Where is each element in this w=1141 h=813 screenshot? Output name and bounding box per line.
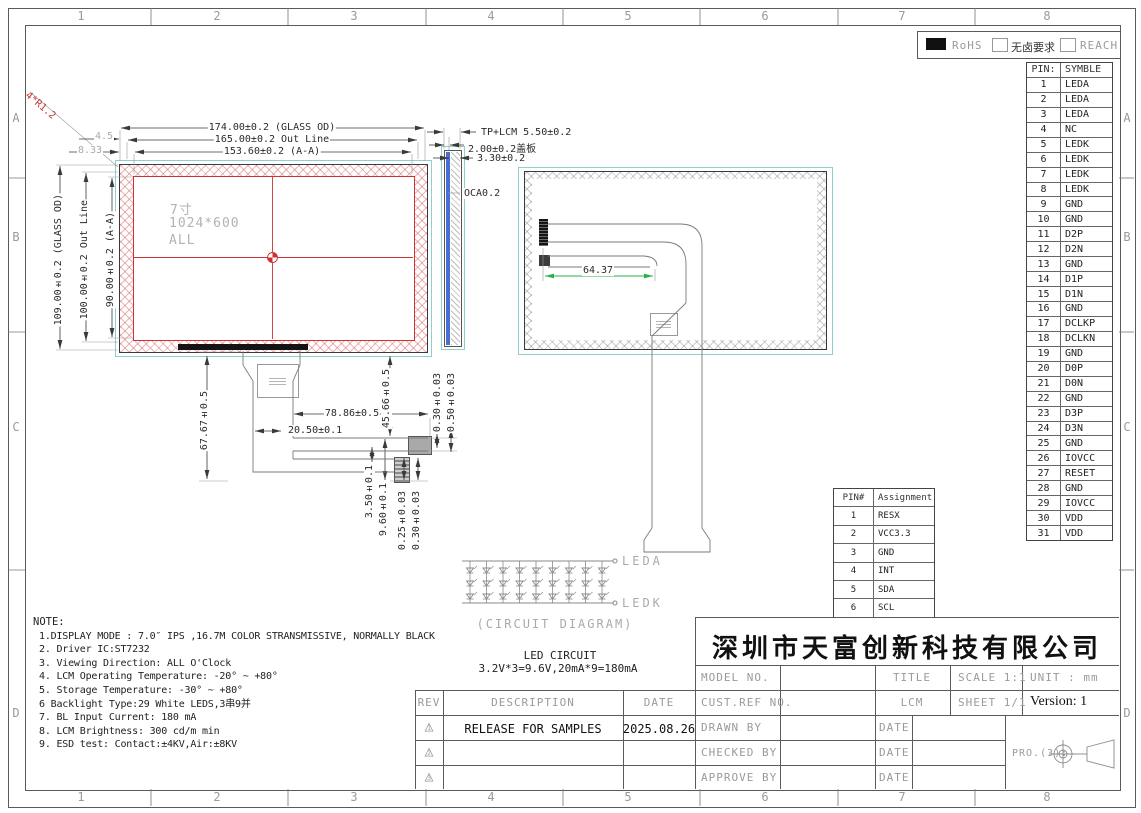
projection-label: PRO.(3): [1012, 748, 1068, 759]
pin-table-cell-val: GND [1061, 481, 1112, 495]
pin-table-cell-val: D3N [1061, 422, 1112, 436]
pin-table-cell-pin: 8 [1027, 183, 1061, 197]
frame-col-label: 1 [77, 9, 84, 23]
pin-table-row: 22GND [1027, 392, 1112, 407]
frame-row-label: C [1123, 420, 1130, 434]
tp-pin-table-cell-val: Assignment [874, 489, 934, 506]
pin-table-cell-pin: 24 [1027, 422, 1061, 436]
frame-col-label: 3 [350, 9, 357, 23]
halogen-free-checkbox [992, 38, 1008, 52]
tp-pin-table-cell-pin: 2 [834, 526, 874, 543]
frame-col-label: 5 [624, 790, 631, 804]
notes-block: NOTE:1.DISPLAY MODE : 7.0″ IPS ,16.7M CO… [33, 616, 433, 752]
revision-number: 1 [427, 725, 431, 732]
tp-pin-table-row: 4INT [834, 563, 934, 581]
tp-pin-table-cell-val: RESX [874, 507, 934, 524]
dim-fpc-branch-drop: 45.66±0.5 [381, 368, 392, 429]
pin-table-cell-pin: 10 [1027, 212, 1061, 226]
pin-table-cell-val: GND [1061, 257, 1112, 271]
pin-table-cell-pin: 15 [1027, 287, 1061, 301]
revision-number: 3 [427, 775, 431, 782]
pin-table-cell-val: D1P [1061, 272, 1112, 286]
dim-width-glass: 174.00±0.2 (GLASS OD) [208, 122, 336, 133]
frame-row-label: C [12, 420, 19, 434]
dim-fpc-thk-top-2: 0.50±0.03 [446, 372, 457, 433]
pin-table-row: 21D0N [1027, 377, 1112, 392]
note-line: 6 Backlight Type:29 White LEDS,3串9并 [33, 698, 433, 712]
dim-side-lcm: 3.30±0.2 [476, 153, 526, 164]
pin-table-cell-pin: 30 [1027, 511, 1061, 525]
tp-pin-table-cell-pin: PIN# [834, 489, 874, 506]
pin-table-row: 5LEDK [1027, 138, 1112, 153]
pin-table-cell-pin: 20 [1027, 362, 1061, 376]
reach-checkbox [1060, 38, 1076, 52]
pin-table-cell-pin: 16 [1027, 302, 1061, 316]
note-line: 4. LCM Operating Temperature: -20° ~ +80… [33, 670, 433, 684]
frame-col-label: 5 [624, 9, 631, 23]
dim-height-outline: 100.00±0.2 Out Line [79, 199, 90, 320]
circuit-diagram-caption: (CIRCUIT DIAGRAM) [477, 617, 634, 631]
checked-by-label: CHECKED BY [701, 746, 777, 759]
pin-table-cell-pin: 13 [1027, 257, 1061, 271]
tp-pin-table-cell-pin: 5 [834, 581, 874, 598]
fpc-connector-2 [394, 457, 410, 483]
unit-label: UNIT : mm [1030, 671, 1099, 684]
tp-pin-table-row: PIN#Assignment [834, 489, 934, 507]
revision-description: RELEASE FOR SAMPLES [464, 722, 601, 736]
tp-pin-table-row: 5SDA [834, 581, 934, 599]
pin-table-cell-val: LEDA [1061, 78, 1112, 92]
dim-fpc-thk-bot-1: 0.25±0.03 [397, 490, 408, 551]
rev-col-header: REV [418, 696, 441, 709]
pin-table-row: 7LEDK [1027, 168, 1112, 183]
tp-pin-table-cell-pin: 1 [834, 507, 874, 524]
fpc-connector-1 [408, 436, 432, 455]
tp-pin-table-row: 6SCL [834, 599, 934, 616]
note-line: 7. BL Input Current: 180 mA [33, 711, 433, 725]
screen-resolution-label: 1024*600 [169, 216, 240, 231]
frame-row-label: A [1123, 111, 1130, 125]
pin-table-cell-pin: 4 [1027, 123, 1061, 137]
back-connector-2 [539, 255, 550, 266]
pin-table-cell-val: VDD [1061, 526, 1112, 540]
dim-fpc-branch-width: 78.86±0.5 [324, 408, 380, 419]
drawn-by-label: DRAWN BY [701, 721, 762, 734]
dim-fpc-neck-offset: 20.50±0.1 [287, 425, 343, 436]
back-stamp-box [650, 313, 678, 336]
pin-table-row: 2LEDA [1027, 93, 1112, 108]
pin-table-row: 1LEDA [1027, 78, 1112, 93]
led-circuit-title: LED CIRCUIT [524, 649, 597, 662]
pin-table-row: 12D2N [1027, 242, 1112, 257]
drawn-date-label: DATE [879, 721, 910, 734]
pin-table-cell-val: LEDK [1061, 183, 1112, 197]
tp-pin-table-cell-pin: 3 [834, 544, 874, 561]
tp-pin-table-cell-val: VCC3.3 [874, 526, 934, 543]
front-stamp-marks [269, 377, 286, 385]
tp-pin-table-row: 2VCC3.3 [834, 526, 934, 544]
pin-table-row: PIN:SYMBLE [1027, 63, 1112, 78]
pin-table-row: 26IOVCC [1027, 451, 1112, 466]
pin-table-cell-val: GND [1061, 212, 1112, 226]
pin-table-cell-val: SYMBLE [1061, 63, 1112, 77]
pin-table-cell-val: IOVCC [1061, 451, 1112, 465]
reach-label: REACH [1080, 39, 1118, 52]
interface-pin-table: PIN:SYMBLE1LEDA2LEDA3LEDA4NC5LEDK6LEDK7L… [1026, 62, 1113, 541]
dim-fpc-gap: 3.50±0.1 [364, 464, 375, 519]
pin-table-cell-val: RESET [1061, 466, 1112, 480]
pin-table-row: 4NC [1027, 123, 1112, 138]
pin-table-cell-pin: 29 [1027, 496, 1061, 510]
pin-table-cell-pin: 22 [1027, 392, 1061, 406]
pin-table-cell-pin: 9 [1027, 197, 1061, 211]
pin-table-cell-pin: 19 [1027, 347, 1061, 361]
note-line: 1.DISPLAY MODE : 7.0″ IPS ,16.7M COLOR S… [33, 630, 433, 644]
frame-col-label: 7 [898, 9, 905, 23]
back-connector-1 [539, 219, 548, 246]
pin-table-cell-pin: 23 [1027, 407, 1061, 421]
pin-table-cell-val: D2N [1061, 242, 1112, 256]
frame-col-label: 6 [761, 9, 768, 23]
frame-row-label: A [12, 111, 19, 125]
note-line: 8. LCM Brightness: 300 cd/m min [33, 725, 433, 739]
pin-table-row: 11D2P [1027, 227, 1112, 242]
pin-table-row: 31VDD [1027, 526, 1112, 540]
pin-table-cell-val: GND [1061, 347, 1112, 361]
pin-table-row: 18DCLKN [1027, 332, 1112, 347]
fpc-bonding-bar [178, 344, 308, 350]
note-line: 3. Viewing Direction: ALL O'Clock [33, 657, 433, 671]
pin-table-cell-pin: 21 [1027, 377, 1061, 391]
dim-side-oca: OCA0.2 [463, 188, 501, 199]
note-title: NOTE: [33, 616, 433, 630]
dim-fpc-tail-len: 9.60±0.1 [378, 482, 389, 537]
dim-fpc-thk-bot-2: 0.30±0.03 [411, 490, 422, 551]
frame-row-label: D [12, 706, 19, 720]
pin-table-cell-val: D1N [1061, 287, 1112, 301]
pin-table-cell-pin: 26 [1027, 451, 1061, 465]
pin-table-row: 28GND [1027, 481, 1112, 496]
revision-marker: △2 [424, 744, 433, 759]
side-view-cover-glass [446, 152, 450, 345]
pin-table-cell-pin: 11 [1027, 227, 1061, 241]
pin-table-row: 29IOVCC [1027, 496, 1112, 511]
pin-table-cell-val: GND [1061, 392, 1112, 406]
note-line: 5. Storage Temperature: -30° ~ +80° [33, 684, 433, 698]
tp-pin-table-row: 3GND [834, 544, 934, 562]
pin-table-cell-pin: 28 [1027, 481, 1061, 495]
version-value: Version: 1 [1030, 694, 1087, 710]
rohs-label: RoHS [952, 39, 983, 52]
pin-table-row: 15D1N [1027, 287, 1112, 302]
pin-table-row: 17DCLKP [1027, 317, 1112, 332]
pin-table-cell-val: GND [1061, 436, 1112, 450]
pin-table-cell-val: D0N [1061, 377, 1112, 391]
pin-table-cell-pin: 17 [1027, 317, 1061, 331]
cust-ref-label: CUST.REF NO. [701, 696, 792, 709]
led-circuit-spec: 3.2V*3=9.6V,20mA*9=180mA [479, 662, 638, 675]
frame-col-label: 4 [487, 790, 494, 804]
engineering-drawing-sheet: 1122334455667788AABBCCDD RoHS 无卤要求 REACH… [0, 0, 1141, 813]
company-name: 深圳市天富创新科技有限公司 [712, 628, 1102, 665]
pin-table-row: 10GND [1027, 212, 1112, 227]
revision-number: 2 [427, 750, 431, 757]
pin-table-row: 13GND [1027, 257, 1112, 272]
checked-date-label: DATE [879, 746, 910, 759]
pin-table-cell-val: IOVCC [1061, 496, 1112, 510]
revision-marker: △1 [424, 719, 433, 734]
frame-col-label: 4 [487, 9, 494, 23]
pin-table-cell-pin: 5 [1027, 138, 1061, 152]
approve-by-label: APPROVE BY [701, 771, 777, 784]
pin-table-cell-val: LEDK [1061, 153, 1112, 167]
pin-table-cell-pin: 18 [1027, 332, 1061, 346]
pin-table-cell-pin: 2 [1027, 93, 1061, 107]
frame-col-label: 1 [77, 790, 84, 804]
pin-table-cell-val: DCLKN [1061, 332, 1112, 346]
pin-table-cell-val: LEDK [1061, 138, 1112, 152]
pin-table-row: 9GND [1027, 197, 1112, 212]
pin-table-row: 8LEDK [1027, 183, 1112, 198]
note-line: 2. Driver IC:ST7232 [33, 643, 433, 657]
halogen-free-label: 无卤要求 [1011, 39, 1055, 55]
sheet-label: SHEET 1/1 [958, 696, 1027, 709]
dim-fpc-thk-top-1: 0.30±0.03 [432, 372, 443, 433]
pin-table-cell-val: LEDA [1061, 93, 1112, 107]
pin-table-cell-val: VDD [1061, 511, 1112, 525]
frame-col-label: 2 [213, 9, 220, 23]
pin-table-row: 20D0P [1027, 362, 1112, 377]
pin-table-cell-pin: 6 [1027, 153, 1061, 167]
pin-table-cell-val: LEDA [1061, 108, 1112, 122]
touch-pin-table: PIN#Assignment1RESX2VCC3.33GND4INT5SDA6S… [833, 488, 935, 618]
frame-col-label: 6 [761, 790, 768, 804]
pin-table-cell-pin: 1 [1027, 78, 1061, 92]
pin-table-cell-val: DCLKP [1061, 317, 1112, 331]
dim-height-aa: 90.00±0.2 (A-A) [105, 211, 116, 308]
pin-table-cell-pin: 12 [1027, 242, 1061, 256]
revision-date: 2025.08.26 [623, 722, 695, 736]
tp-pin-table-cell-val: GND [874, 544, 934, 561]
pin-table-cell-val: GND [1061, 302, 1112, 316]
frame-row-label: B [12, 230, 19, 244]
dim-width-outline: 165.00±0.2 Out Line [214, 134, 330, 145]
compliance-strip: RoHS 无卤要求 REACH [917, 31, 1121, 59]
pin-table-cell-val: NC [1061, 123, 1112, 137]
pin-table-row: 14D1P [1027, 272, 1112, 287]
note-line: 9. ESD test: Contact:±4KV,Air:±8KV [33, 738, 433, 752]
pin-table-cell-pin: 7 [1027, 168, 1061, 182]
tp-pin-table-cell-val: INT [874, 563, 934, 580]
title-value: LCM [901, 696, 924, 709]
tp-pin-table-row: 1RESX [834, 507, 934, 525]
pin-table-cell-pin: PIN: [1027, 63, 1061, 77]
model-no-label: MODEL NO. [701, 671, 770, 684]
pin-table-cell-pin: 27 [1027, 466, 1061, 480]
pin-table-cell-val: D2P [1061, 227, 1112, 241]
dim-corner-2: 8.33 [77, 145, 103, 156]
side-view-lcm-hatch [451, 152, 460, 345]
tp-pin-table-cell-val: SDA [874, 581, 934, 598]
title-label: TITLE [893, 671, 931, 684]
frame-row-label: B [1123, 230, 1130, 244]
pin-table-row: 24D3N [1027, 422, 1112, 437]
pin-table-row: 25GND [1027, 436, 1112, 451]
pin-table-cell-pin: 14 [1027, 272, 1061, 286]
frame-col-label: 3 [350, 790, 357, 804]
pin-table-row: 23D3P [1027, 407, 1112, 422]
tp-pin-table-cell-val: SCL [874, 599, 934, 616]
scale-label: SCALE 1:1 [958, 671, 1027, 684]
pin-table-row: 19GND [1027, 347, 1112, 362]
frame-col-label: 8 [1043, 9, 1050, 23]
frame-row-label: D [1123, 706, 1130, 720]
led-anode-label: LEDA [622, 554, 663, 568]
pin-table-cell-pin: 3 [1027, 108, 1061, 122]
front-stamp-box [257, 364, 299, 398]
rev-date-col-header: DATE [644, 696, 675, 709]
tp-pin-table-cell-pin: 4 [834, 563, 874, 580]
dim-back-connector: 64.37 [582, 265, 614, 276]
tp-pin-table-cell-pin: 6 [834, 599, 874, 616]
screen-note-label: ALL [169, 233, 195, 248]
dim-width-aa: 153.60±0.2 (A-A) [223, 146, 321, 157]
revision-marker: △3 [424, 769, 433, 784]
dim-height-glass: 109.00±0.2 (GLASS OD) [53, 193, 64, 326]
pin-table-cell-pin: 25 [1027, 436, 1061, 450]
pin-table-row: 30VDD [1027, 511, 1112, 526]
frame-col-label: 2 [213, 790, 220, 804]
pin-table-row: 6LEDK [1027, 153, 1112, 168]
pin-table-row: 3LEDA [1027, 108, 1112, 123]
dim-fpc-length: 67.67±0.5 [199, 390, 210, 451]
frame-col-label: 8 [1043, 790, 1050, 804]
pin-table-cell-val: GND [1061, 197, 1112, 211]
pin-table-row: 16GND [1027, 302, 1112, 317]
dim-side-total: TP+LCM 5.50±0.2 [480, 127, 572, 138]
led-cathode-label: LEDK [622, 596, 663, 610]
description-col-header: DESCRIPTION [491, 696, 575, 709]
approve-date-label: DATE [879, 771, 910, 784]
back-stamp-marks [656, 321, 671, 328]
dim-corner-1: 4.5 [94, 131, 114, 142]
side-view-body [444, 150, 462, 347]
rohs-checkbox [926, 38, 946, 50]
pin-table-cell-val: D0P [1061, 362, 1112, 376]
pin-table-cell-val: LEDK [1061, 168, 1112, 182]
frame-col-label: 7 [898, 790, 905, 804]
pin-table-row: 27RESET [1027, 466, 1112, 481]
pin-table-cell-pin: 31 [1027, 526, 1061, 540]
pin-table-cell-val: D3P [1061, 407, 1112, 421]
